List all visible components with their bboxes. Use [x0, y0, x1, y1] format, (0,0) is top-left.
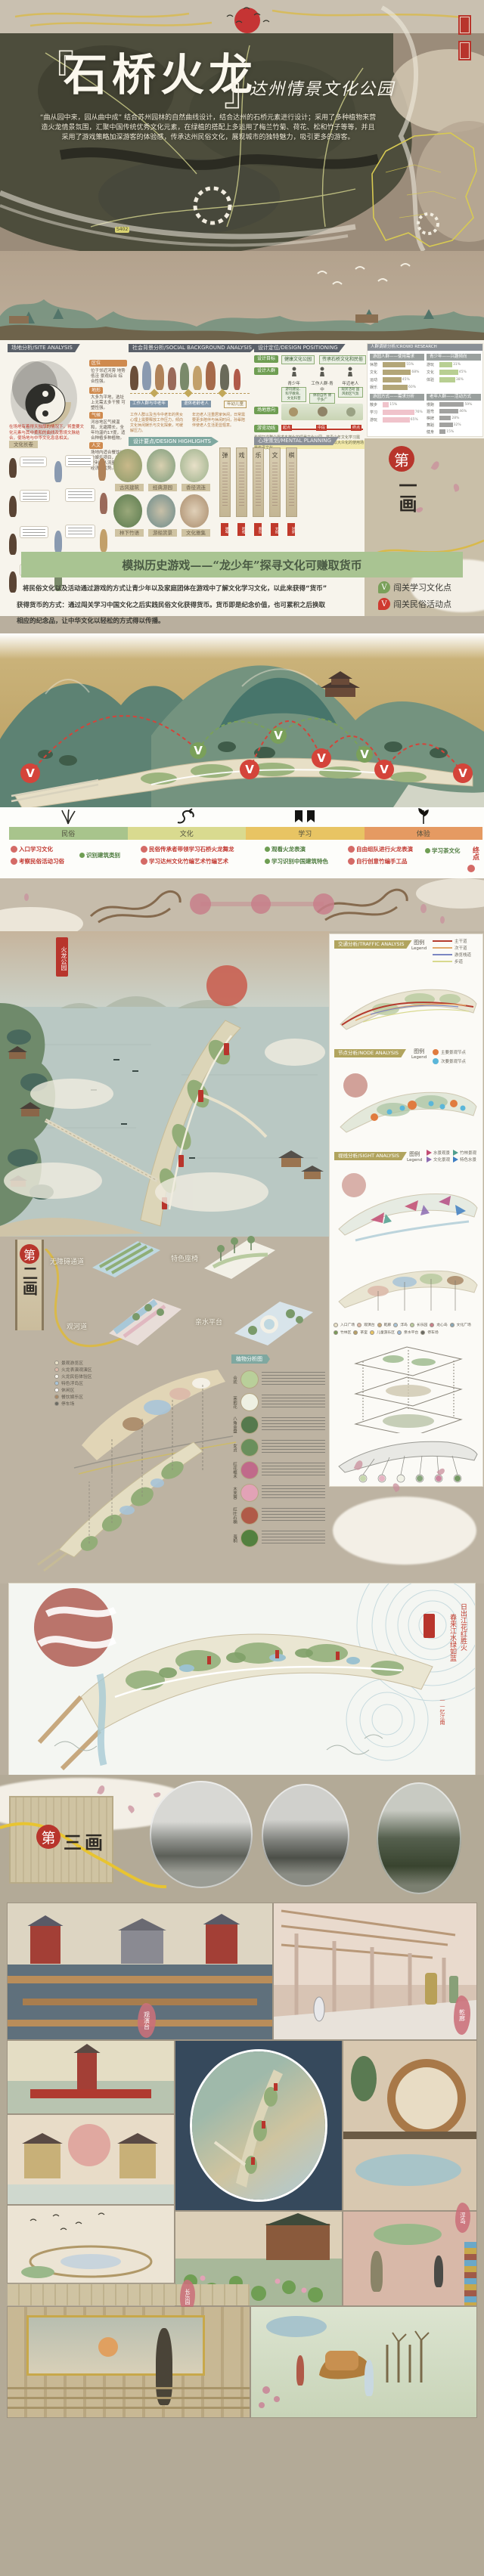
chart-value: 45% — [402, 378, 410, 382]
legend-dot — [433, 1049, 439, 1055]
row-tag: 游览动线 — [254, 425, 278, 432]
bookmark-tag: 听戏 — [237, 523, 245, 536]
chart-bar — [439, 423, 453, 427]
figure-art — [168, 367, 176, 390]
chart-value: 15% — [446, 430, 454, 434]
legend-title: 图例Legend — [407, 1150, 422, 1163]
site-tag: 地形 — [89, 387, 103, 394]
site-photo-oval — [262, 1784, 349, 1887]
speech-bubble — [65, 525, 95, 538]
chart-cat: 文化 — [427, 370, 439, 375]
legend-arrow-icon — [427, 1156, 432, 1163]
corner-seal-icon — [458, 15, 471, 35]
figure-art — [434, 2256, 443, 2287]
chart-title: 老年人群——活动方式 — [427, 394, 481, 401]
journey-label: 学习 — [298, 828, 312, 838]
bookmark-scroll: 戏 — [236, 447, 247, 517]
journey-segment: 民俗 — [9, 827, 128, 840]
pavilion-art — [121, 1929, 163, 1964]
highlight-label: 香径流连 — [181, 484, 210, 491]
site-analysis-notes: 区位 — [89, 360, 127, 367]
chart-value: 45% — [459, 370, 467, 374]
chapter-three-label: 三画 — [64, 1828, 106, 1854]
person-note: 体验自然 博学多广 — [309, 393, 334, 404]
poem-source: ——忆江南 — [439, 1697, 446, 1742]
flow-item: 考察民俗活动习俗 — [11, 857, 64, 865]
chain-item: 传承石桥文化和民俗 — [319, 355, 366, 364]
chart-cat: 健身 — [427, 429, 439, 435]
roof-art — [200, 1914, 244, 1924]
traffic-plan-art — [333, 968, 479, 1043]
v-red-icon: V — [378, 598, 390, 610]
exploded-axon-art — [340, 1342, 473, 1433]
header-section: 『 石桥火龙 』 达州情景文化公园 “曲从园中来，园从曲中成” 结合苏州园林的自… — [0, 0, 484, 251]
route-stop: 中段 — [316, 425, 327, 431]
survey-panel: 人群调研分析/CROWD RESEARCH 游园人群——使用需求 休憩55% 文… — [368, 344, 482, 436]
figure-art — [206, 361, 216, 390]
figure-art — [9, 571, 17, 593]
svg-text:V: V — [274, 729, 283, 742]
legend-dot — [433, 1058, 439, 1064]
chart-bar — [439, 402, 464, 407]
figure-art — [193, 366, 202, 390]
group-chip: 工作人群与中老年 — [130, 401, 168, 407]
site-photo-oval — [377, 1782, 461, 1894]
flow-dot-icon — [11, 858, 17, 865]
zone-dot — [54, 1381, 59, 1386]
chart-value: 46% — [459, 410, 467, 413]
nodes-plan-art — [333, 1070, 479, 1146]
flow-column: 观看火龙表演 学习识别中国建筑特色 — [265, 845, 328, 865]
watercolor-masterplan: 日出江花红胜火 春来江水绿如蓝 ——忆江南 — [9, 1584, 475, 1775]
nodes-header: 节点分析/NODE ANALYSIS — [334, 1049, 406, 1057]
chart-cat: 游玩 — [370, 417, 383, 423]
site-note: 大多为平地，选址上无需太多干预 可塑性强。 — [91, 395, 126, 411]
game-legend-label: 闯关民俗活动点 — [393, 598, 451, 610]
game-paragraph: 获得货币的方式：通过闯关学习中国文化之后实践民俗文化获得货币。货币即是纪念价值，… — [17, 600, 357, 609]
chart-value: 65% — [411, 418, 418, 422]
figure-art — [155, 364, 164, 390]
route-stop: 终点 — [351, 425, 361, 431]
highlight-oval — [147, 449, 175, 482]
flow-end-dot-icon — [467, 865, 475, 872]
site-intent-strip — [281, 404, 363, 420]
sunset-art — [98, 2337, 118, 2357]
chart-cat: 娱乐 — [370, 385, 383, 390]
svg-text:V: V — [317, 751, 326, 765]
plant-photo — [240, 1484, 259, 1502]
petal-art — [431, 460, 441, 471]
playground-art — [251, 2307, 476, 2417]
page-subtitle: 达州情景文化公园 — [250, 76, 395, 100]
dragon-art — [0, 878, 484, 931]
plank-band-art — [8, 2284, 250, 2305]
svg-text:V: V — [360, 748, 369, 761]
pond-art — [355, 2154, 461, 2186]
zone-dot — [54, 1401, 59, 1406]
chart-bar — [439, 429, 445, 434]
flow-item: 自行创意竹编手工品 — [348, 857, 413, 865]
chart-value: 76% — [415, 410, 423, 414]
survey-chart: 青少年——兴趣倾向 游玩31% 文化45% 体验38% — [427, 354, 481, 383]
social-analysis-header: 社会背景分析/SOCIAL BACKGROUND ANALYSIS — [129, 344, 259, 352]
platform-art — [23, 1999, 257, 2005]
flow-dot-icon — [79, 853, 85, 858]
plant-name: 红花檵木 — [231, 1462, 237, 1478]
figure-art — [54, 531, 62, 553]
chart-cat: 散步 — [370, 402, 383, 407]
corridor-art — [274, 1903, 476, 2039]
legend-arrow-icon — [427, 1150, 432, 1156]
pavilion-art — [24, 2142, 60, 2178]
chapter-one-seal: 第 — [389, 446, 414, 472]
intro-paragraph: “曲从园中来，园从曲中成” 结合苏州园林的自然曲线设计，结合达州的石桥元素进行设… — [39, 113, 377, 143]
bird-plaza-art — [8, 2206, 174, 2283]
second-section: 火龙公园 交通分析/TRAFFIC ANALYSIS 图例Legend 主干道 … — [0, 931, 484, 1584]
feature-label: 观河道 — [67, 1321, 87, 1331]
timeline-node-icon — [150, 389, 158, 397]
historic-figures-strip — [130, 357, 250, 390]
chart-title: 青少年——兴趣倾向 — [427, 354, 481, 361]
highlight-label: 游船赏景 — [148, 529, 177, 537]
plant-photo — [240, 1438, 259, 1457]
park-name-seal: 火龙公园 — [56, 937, 68, 977]
chart-cat: 慢跑 — [427, 402, 439, 407]
v-green-icon: V — [378, 581, 390, 593]
person-label: 工作人群·青中 — [309, 380, 334, 392]
plant-photo — [240, 1461, 259, 1479]
roof-art — [24, 1915, 67, 1926]
game-legend-label: 闯关学习文化点 — [393, 581, 451, 593]
flow-dot-icon — [265, 859, 270, 864]
game-legend: V 闯关学习文化点 V 闯关民俗活动点 — [378, 579, 451, 612]
highlight-label: 经典游园 — [148, 484, 177, 491]
render-red-stage — [8, 2041, 174, 2113]
timeline-node-icon — [184, 389, 192, 397]
stage-art — [30, 2089, 151, 2098]
figure-art — [98, 458, 106, 481]
plants-banner: 植物分析图 — [231, 1355, 270, 1364]
journey-segment: 文化 — [128, 827, 247, 840]
highlight-oval — [113, 494, 142, 528]
svg-text:V: V — [458, 766, 467, 780]
figure-art — [365, 2360, 374, 2396]
nodes-legend: 主要景观节点 次要景观节点 — [433, 1048, 466, 1066]
chapter-three-seal: 第 — [36, 1825, 60, 1849]
highlights-header: 设计要点/DESIGN HIGHLIGHTS — [129, 437, 219, 446]
chart-value: 59% — [464, 403, 472, 407]
roof-art — [18, 2133, 67, 2144]
folk-grass-icon — [59, 807, 77, 825]
plant-name: 合欢 — [231, 1376, 237, 1384]
flow-dot-icon — [11, 846, 17, 853]
speech-bubble — [65, 455, 94, 467]
render-navy-plan-inset — [175, 2041, 342, 2210]
flow-item: 观看火龙表演 — [265, 845, 328, 853]
dragon-icon — [175, 807, 197, 825]
row-tag: 设计人群 — [254, 367, 278, 375]
chart-bar — [383, 385, 408, 390]
timeline-node-icon — [218, 389, 226, 397]
zoning-plan-art — [333, 1258, 479, 1320]
survey-chart: 游园方式——需求分析 散步15% 学习76% 游玩65% — [370, 394, 424, 423]
highlight-label: 古风建筑 — [115, 484, 144, 491]
speech-bubble — [20, 457, 47, 467]
highlight-oval — [147, 494, 175, 528]
yellow-ribbon-art — [0, 1797, 166, 1911]
game-paragraph: 将民俗文化以及活动通过游戏的方式让青少年以及家庭团体在游戏中了解文化学习文化，以… — [23, 584, 355, 593]
figure-art — [9, 496, 17, 517]
highlight-oval — [180, 494, 209, 528]
feature-axon-art — [103, 1288, 186, 1348]
chart-cat: 游玩 — [427, 362, 439, 367]
person-note: 观赏活动 国风街区气氛 — [338, 387, 363, 398]
chart-bar — [383, 410, 414, 415]
flow-item: 识别建筑类别 — [79, 851, 120, 859]
social-note: 工作人群以及当今中老年的男女心理上需要释放工作压力，倾向文化休闲娱乐与文化探索，… — [130, 413, 186, 434]
survey-chart: 老年人群——活动方式 慢跑59% 遛弯46% 棋牌28% 舞蹈32% 健身15% — [427, 394, 481, 435]
journey-strip: 民俗 文化 学习 体验 入口学习文化 考察民俗活动习俗 识别建筑类别 民俗传承者… — [0, 807, 484, 878]
chart-cat: 棋牌 — [427, 416, 439, 421]
poem-line: 日出江花红胜火 — [458, 1603, 468, 1701]
chain-item: 健康文化公园 — [281, 355, 315, 364]
plant-name: 木芙蓉 — [231, 1487, 237, 1500]
flow-item: 学习识别中国建筑特色 — [265, 857, 328, 865]
svg-text:V: V — [380, 763, 389, 776]
chart-value: 38% — [456, 378, 464, 382]
feature-label: 无障碍通道 — [50, 1256, 84, 1266]
tree-art — [351, 2056, 377, 2101]
legend-line — [433, 961, 452, 962]
social-note: 年迈老人注重居家休闲，日常需要更多陪伴与休闲时间，孙辈陪伴使老人生活更显惬意。 — [192, 413, 248, 429]
birdseye-painting-art — [0, 931, 330, 1237]
figure-art — [296, 2355, 304, 2386]
mountain-band-art — [0, 251, 484, 340]
flow-dot-icon — [348, 858, 355, 865]
journey-label: 文化 — [180, 828, 194, 838]
poem-line: 春来江水绿如蓝 — [448, 1614, 458, 1712]
row-tag: 设计目标 — [254, 355, 278, 363]
bookmark-tag: 弹琴 — [221, 523, 228, 536]
bookmark-scroll: 文 — [269, 447, 281, 517]
bookmark-scroll: 乐 — [253, 447, 264, 517]
analysis-section: 场地分析/SITE ANALYSIS 区位 位于邻近河旁 地势低洼 景观综合 综… — [0, 340, 484, 616]
hall-art — [266, 2224, 330, 2260]
plant-name: 八角金盘 — [231, 1416, 237, 1433]
axon-site-plan-art — [21, 1436, 227, 1576]
group-chip: 退休老龄老人 — [181, 401, 211, 407]
bookmark-char: 棋 — [287, 451, 296, 460]
chart-bar — [383, 377, 402, 382]
person-icon — [290, 367, 298, 377]
figure-art — [234, 369, 240, 390]
people-row: 青少年 游玩建设、科学教育、文化科普 工作人群·青中 体验自然 博学多广 年迈老… — [281, 366, 363, 404]
svg-text:V: V — [26, 766, 35, 780]
feature-label: 特色座椅 — [171, 1253, 198, 1263]
figure-art — [220, 364, 229, 390]
site-tag: 人文 — [89, 442, 103, 449]
bookmark-char: 文 — [270, 451, 280, 460]
flow-dot-icon — [141, 846, 147, 853]
plant-name: 女贞 — [231, 1444, 237, 1452]
row-tag: 场地意向 — [254, 407, 278, 414]
plant-list: 合欢 茉莉花 八角金盘 女贞 红花檵木 木芙蓉 红叶石楠 海桐 — [231, 1368, 325, 1550]
flow-column: 自由组队进行火龙表演 自行创意竹编手工品 — [348, 845, 413, 865]
mosaic-strip-art — [464, 2242, 476, 2305]
figure-art — [130, 366, 138, 390]
feature-axon-art — [230, 1293, 318, 1347]
planting-plan-art — [333, 1436, 479, 1483]
chart-bar — [439, 370, 458, 375]
chart-bar — [383, 417, 410, 423]
mental-planning-header: 心理策划/MENTAL PLANNING — [254, 437, 339, 445]
highlight-oval — [113, 449, 142, 482]
legend-title: 图例Legend — [411, 1048, 427, 1060]
chart-bar — [439, 409, 458, 413]
intent-circle-icon — [289, 407, 298, 416]
journey-bar: 民俗 文化 学习 体验 — [9, 827, 482, 840]
chart-title: 游园方式——需求分析 — [370, 394, 424, 401]
site-photo-oval — [150, 1781, 253, 1888]
chart-value: 55% — [406, 363, 414, 367]
platform-art — [8, 1976, 272, 1983]
flow-item: 自由组队进行火龙表演 — [348, 845, 413, 853]
dragon-band — [0, 878, 484, 931]
roof-art — [71, 2044, 103, 2053]
plant-photo — [240, 1370, 259, 1389]
intent-circle-icon — [346, 407, 355, 416]
highlight-label: 文化雅集 — [181, 529, 210, 537]
zone-dot — [54, 1367, 59, 1372]
pavilion-art — [206, 1923, 237, 1964]
game-banner: 模拟历史游戏——“龙少年”探寻文化可赚取货币 — [21, 552, 463, 577]
analysis-column: 交通分析/TRAFFIC ANALYSIS 图例Legend 主干道 次干道 游… — [330, 934, 482, 1486]
survey-chart: 游园人群——使用需求 休憩55% 文化68% 运动45% 娱乐60% — [370, 354, 424, 391]
moongate-art — [387, 2059, 466, 2138]
chart-bar — [439, 416, 451, 420]
render-playground: 龙心岛 — [251, 2307, 476, 2417]
bookmark-tag: 文创 — [271, 523, 278, 536]
figure-art — [9, 458, 17, 478]
sight-header: 视线分析/SIGHT ANALYSIS — [334, 1152, 407, 1160]
person-icon — [318, 367, 326, 377]
svg-text:V: V — [245, 763, 254, 776]
render-moongate-garden — [343, 2041, 476, 2210]
plant-photo — [240, 1506, 259, 1525]
flow-column: 入口学习文化 考察民俗活动习俗 — [11, 845, 64, 865]
petal-art — [453, 483, 461, 492]
flow-item: 民俗传承者带领学习石桥火龙舞龙 — [141, 845, 234, 853]
chart-cat: 体验 — [427, 377, 439, 382]
person-note: 游玩建设、科学教育、文化科普 — [281, 387, 306, 402]
speech-bubble — [20, 526, 48, 538]
legend-line — [433, 954, 452, 955]
chart-value: 15% — [389, 403, 397, 407]
traffic-legend: 主干道 次干道 游览栈道 步道 — [433, 937, 471, 964]
render-bird-plaza — [8, 2206, 174, 2283]
bookmark-char: 乐 — [253, 451, 263, 460]
chart-cat: 休憩 — [370, 362, 383, 367]
bookmark-scroll: 棋 — [286, 447, 297, 517]
highlight-oval — [180, 449, 209, 482]
pool-art — [8, 2184, 174, 2204]
chapter-one-label: 一画 — [393, 476, 420, 512]
chart-cat: 遛弯 — [427, 409, 439, 414]
chart-value: 28% — [451, 416, 459, 420]
roof-art — [113, 2133, 162, 2144]
zone-dot — [54, 1374, 59, 1379]
inset-plan-art — [192, 2051, 325, 2200]
figure-art — [9, 534, 17, 555]
chart-cat: 学习 — [370, 410, 383, 415]
bookmark-char: 戏 — [237, 451, 247, 460]
pink-sun-art — [68, 2124, 110, 2166]
cloud-art — [333, 1497, 476, 1565]
zone-chip-row: 入口广场 观演台 乾廊 浮岛 长乐园 龙心岛 文化广场 竹林区 茶室 儿童游乐区… — [334, 1321, 479, 1336]
render-corridor-interior — [8, 2307, 250, 2417]
roof-art — [113, 1918, 171, 1930]
corridor-roof-art — [343, 2132, 476, 2139]
legend-arrow-icon — [453, 1156, 458, 1163]
plant-photo — [240, 1529, 259, 1547]
chart-value: 60% — [408, 385, 416, 389]
site-note: 位于邻近河旁 地势低洼 景观综合 综合性强。 — [91, 369, 126, 385]
chart-bar — [383, 370, 411, 375]
journey-segment: 学习 — [246, 827, 365, 840]
third-section: 第 三画 观演台 乾廊 — [0, 1775, 484, 2576]
site-summary: 在场地有着得天独厚的情况下，将重要文化元素与其中柔和的曲线及意境文脉结合，使场地… — [9, 425, 85, 442]
site-tag: 气候 — [89, 412, 103, 419]
feature-axon-art — [85, 1234, 163, 1279]
route-stop: 起点 — [281, 425, 292, 431]
flow-item: 入口学习文化 — [11, 845, 64, 853]
leaf-icon — [414, 807, 433, 825]
speech-bubble — [20, 490, 50, 502]
flow-end: 终点 — [470, 847, 480, 860]
route-arcs-art: V V V V V V V V — [0, 694, 484, 807]
roof-art — [259, 2213, 337, 2225]
scroll-icon — [293, 809, 316, 824]
sight-plan-art — [333, 1169, 479, 1252]
highlight-label: 林下竹语 — [115, 529, 144, 537]
story-header: 文化长卷 — [9, 441, 38, 448]
site-note: 河谷地区气候温和，无霜期长，全年均温约17度，适合种植多种植物。 — [91, 420, 126, 441]
speech-bubble — [65, 488, 95, 502]
figure-art — [371, 2251, 383, 2292]
intent-circle-icon — [318, 407, 327, 416]
sight-legend: 水景观景 竹林景观 文化景观 特色水景 — [427, 1149, 476, 1163]
flow-dot-icon — [265, 847, 270, 852]
flow-item: 学习茶文化 — [425, 847, 461, 855]
journey-segment: 体验 — [365, 827, 483, 840]
chart-value: 68% — [411, 370, 419, 374]
chart-cat: 文化 — [370, 370, 383, 375]
positioning-header: 设计定位/DESIGN POSITIONING — [254, 344, 346, 352]
watercolor-plan-art — [9, 1584, 475, 1775]
plan-seal-icon — [423, 1614, 435, 1638]
bookmark-char: 弹 — [220, 451, 230, 460]
zone-dot — [54, 1388, 59, 1392]
chart-value: 31% — [453, 363, 461, 367]
game-paragraph: 相应的纪念品，让中华文化以轻松的方式得以传播。 — [17, 616, 259, 625]
flow-column: 民俗传承者带领学习石桥火龙舞龙 学习达州文化竹编艺术竹编艺术 — [141, 845, 234, 865]
site-analysis-header: 场地分析/SITE ANALYSIS — [8, 344, 80, 352]
road-label: S402 — [115, 227, 129, 233]
chart-bar — [383, 362, 405, 367]
bookmark-tag: 奏乐 — [254, 523, 262, 536]
chart-bar — [383, 402, 389, 407]
plant-name: 海桐 — [231, 1534, 237, 1543]
